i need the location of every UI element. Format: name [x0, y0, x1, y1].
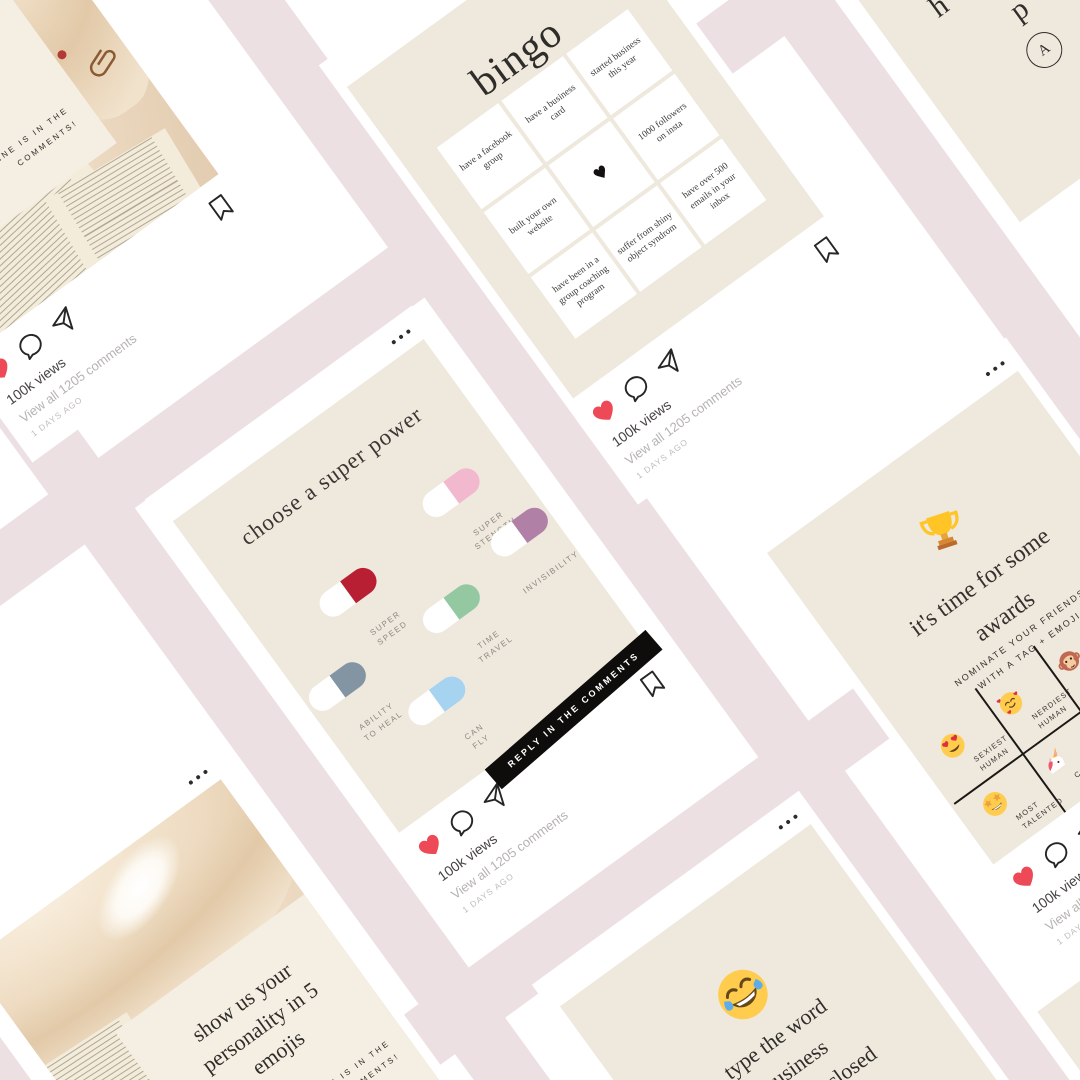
option-a-badge: A: [1019, 25, 1069, 75]
card-subtitle: MINE IS IN THE COMMENTS!: [0, 103, 82, 184]
pill-time-travel: [417, 579, 485, 638]
award-label: COOLEST HUMAN: [1072, 746, 1080, 790]
star-struck-emoji: [977, 786, 1013, 822]
letter-fragment: h: [923, 0, 955, 25]
trophy-emoji: [915, 504, 970, 559]
more-options-icon[interactable]: [382, 322, 414, 352]
unicorn-emoji: [1035, 743, 1071, 779]
awards-grid: [767, 371, 1018, 553]
letter-fragment: p: [1003, 0, 1035, 28]
more-options-icon[interactable]: [976, 353, 1008, 383]
pill-label-time-travel: TIME TRAVEL: [447, 607, 539, 683]
pill-label-super-speed: SUPER SPEED: [343, 591, 435, 667]
more-options-icon[interactable]: [769, 807, 801, 837]
collage-viewport: show us your personality in 5 emojis MIN…: [0, 0, 1080, 1080]
monkey-emoji: [1051, 643, 1080, 679]
smiling-hearts-emoji: [993, 685, 1029, 721]
card-subtitle: MINE IS IN THE COMMENTS!: [308, 1036, 403, 1080]
pill-can-fly: [403, 671, 471, 730]
more-options-icon[interactable]: [179, 762, 211, 792]
pill-ability-to-heal: [303, 656, 371, 715]
paperclip-icon: [81, 39, 128, 86]
heart-eyes-emoji: [935, 728, 971, 764]
scene: show us your personality in 5 emojis MIN…: [0, 0, 1080, 1080]
pill-label-invisibility: INVISIBILITY: [509, 540, 594, 606]
pill-super-strength: [417, 463, 485, 522]
pill-super-speed: [314, 562, 382, 621]
share-icon[interactable]: [1070, 811, 1080, 849]
